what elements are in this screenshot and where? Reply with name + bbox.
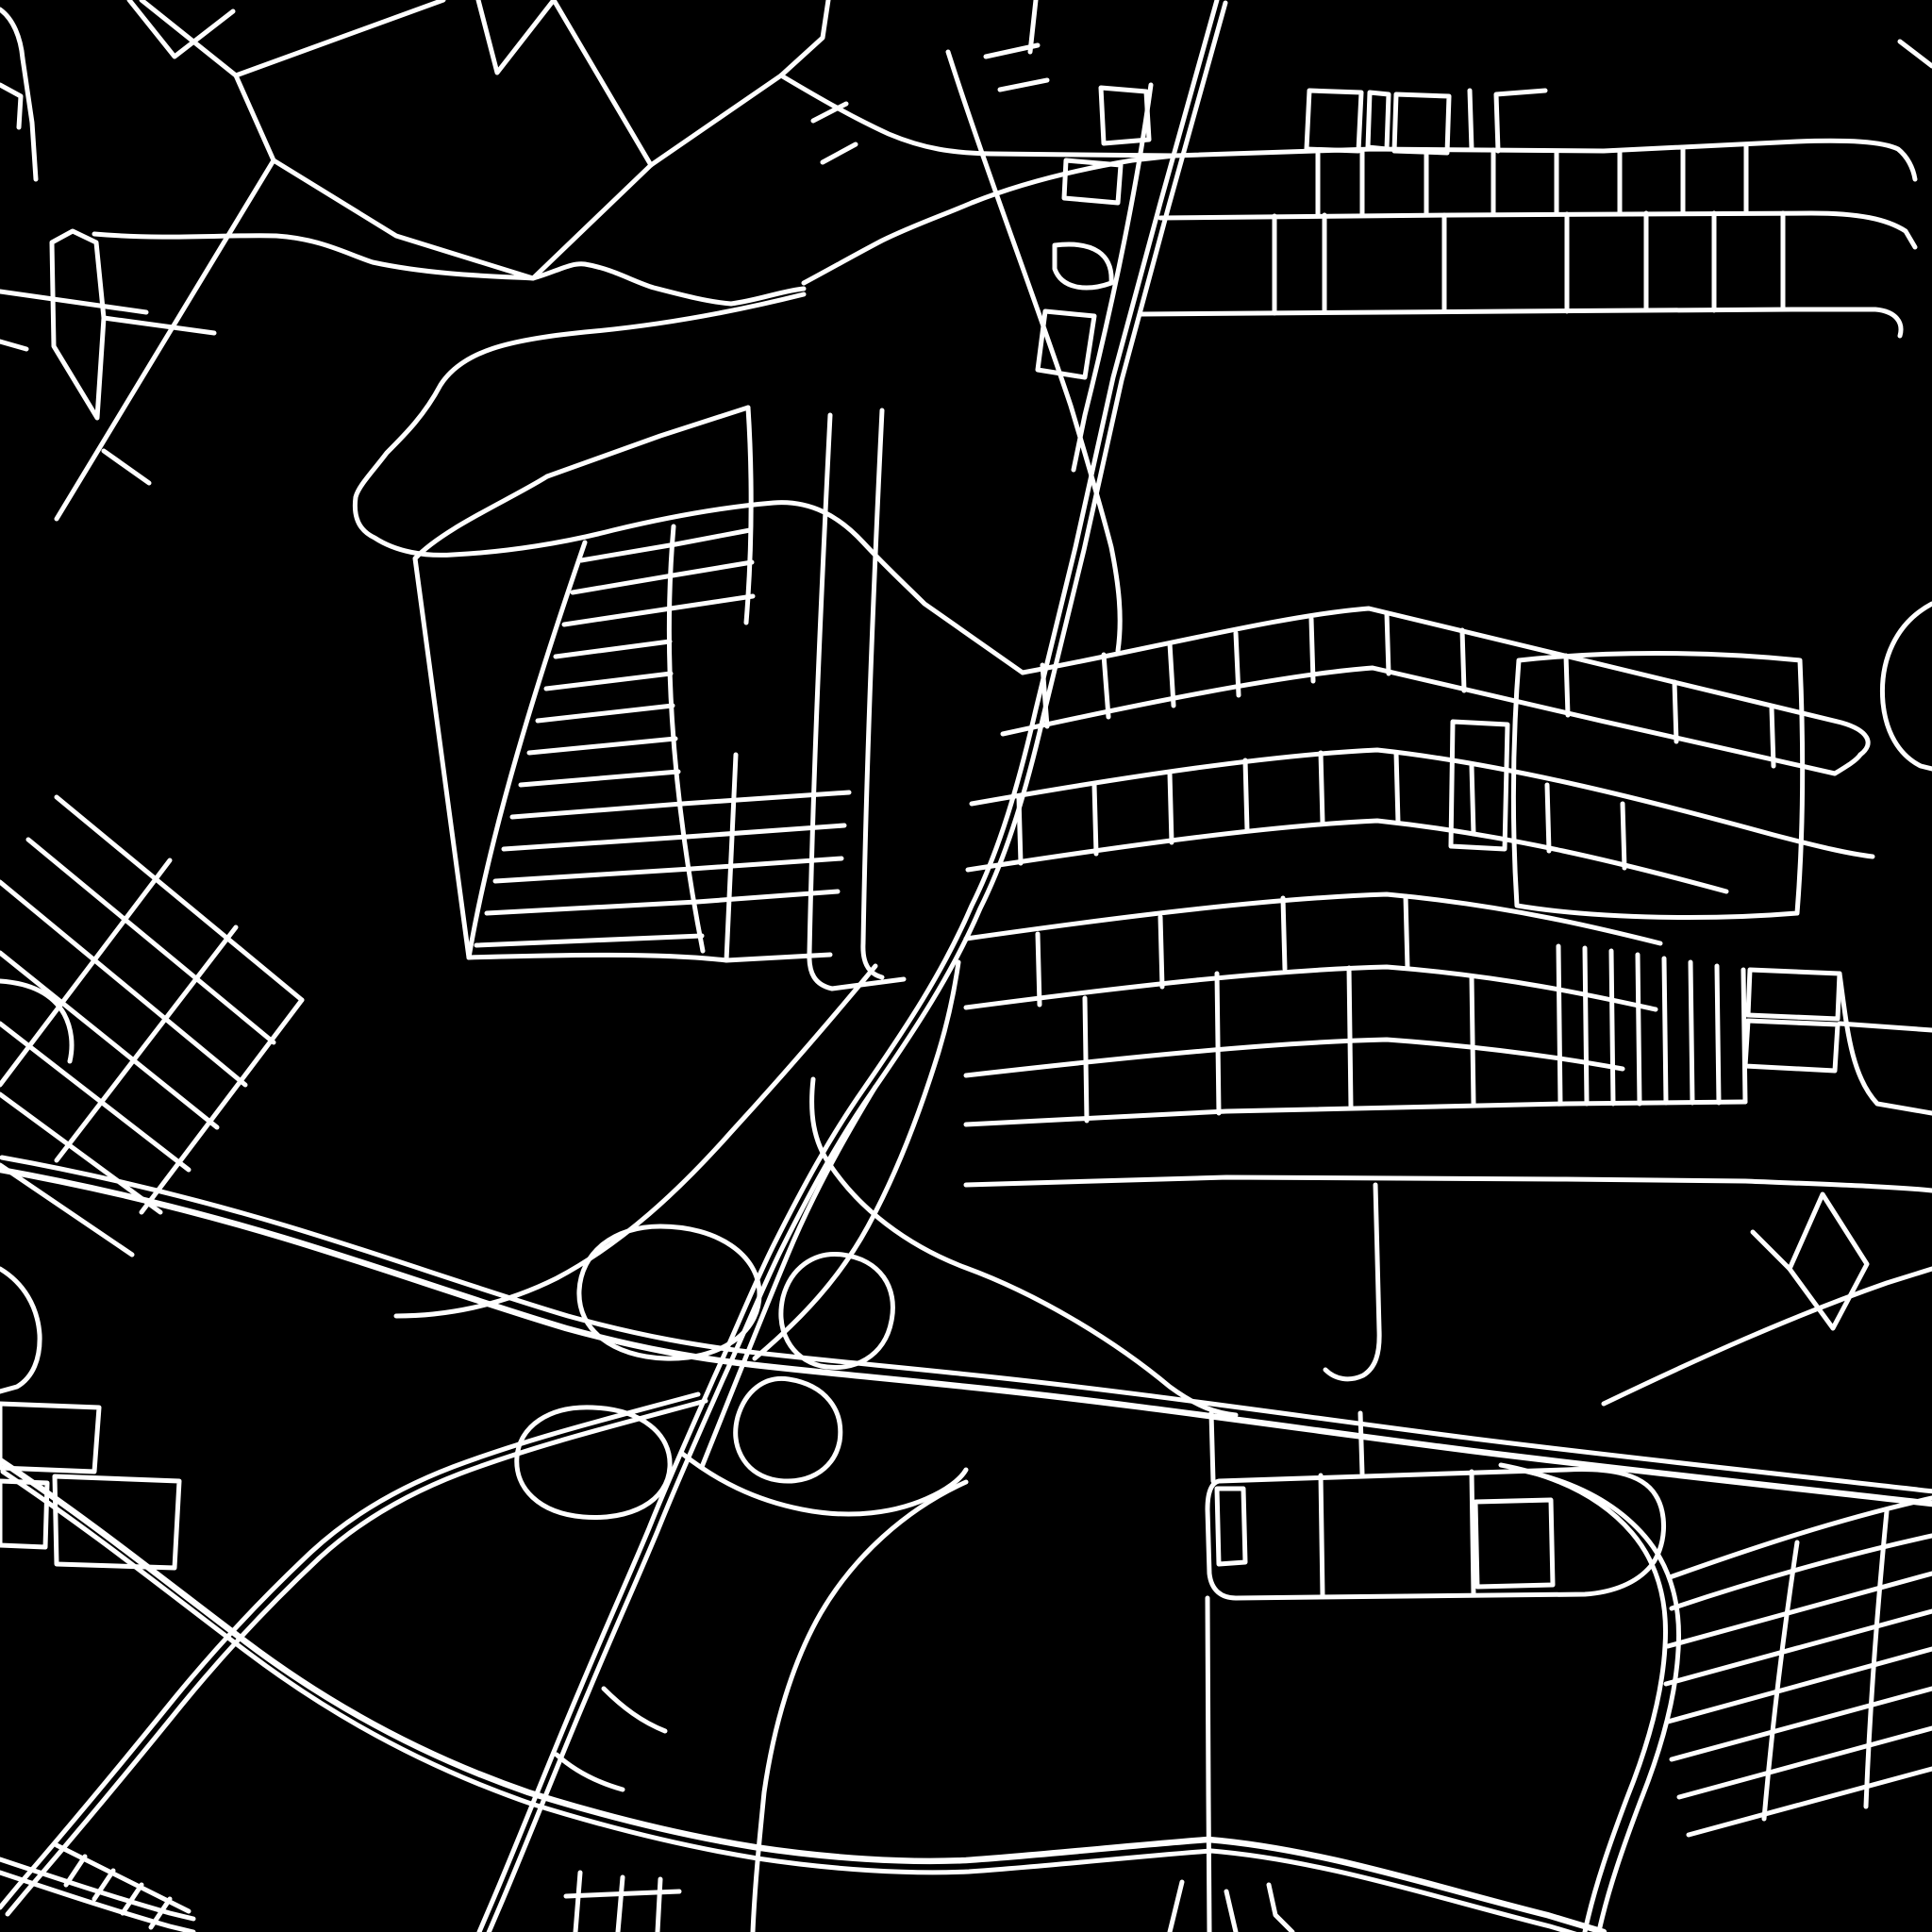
road-retail-vert-d1	[1038, 934, 1040, 1005]
road-column-grid-1	[1558, 946, 1560, 1104]
road-wedge-vert-10	[1772, 708, 1774, 766]
road-retail-vert-f4	[1472, 976, 1474, 1104]
road-retail-vert-f2	[1217, 974, 1219, 1113]
road-vertical-road-v3	[1207, 1598, 1209, 1932]
road-wedge-vert-8	[1566, 656, 1568, 715]
road-retail-vert-d3	[1283, 898, 1285, 969]
road-retail-vert-5	[1321, 753, 1323, 823]
road-column-grid-7	[1717, 966, 1719, 1103]
road-column-grid-2	[1585, 948, 1587, 1104]
road-retail-vert-d2	[1160, 917, 1162, 987]
road-retail-vert-9	[1623, 804, 1624, 868]
road-retail-vert-f3	[1349, 968, 1351, 1108]
road-wedge-vert-7	[1462, 630, 1464, 691]
road-wedge-vert-5	[1311, 619, 1313, 681]
map-canvas[interactable]	[0, 0, 1932, 1932]
road-column-grid-5	[1664, 958, 1666, 1103]
road-retail-vert-d4	[1406, 896, 1407, 968]
road-retail-vert-2	[1094, 785, 1096, 854]
road-stadium-div-1	[1321, 1475, 1323, 1596]
map-viewport[interactable]	[0, 0, 1932, 1932]
road-retail-vert-f1	[1085, 998, 1087, 1121]
road-column-grid-4	[1638, 955, 1640, 1104]
road-stadium-stub	[1360, 1413, 1362, 1474]
road-retail-vert-7	[1472, 766, 1474, 834]
road-retail-vert-4	[1245, 760, 1247, 830]
road-retail-vert-3	[1170, 774, 1172, 842]
road-wedge-vert-4	[1236, 633, 1239, 695]
road-bottom-comb-3	[658, 1879, 660, 1932]
road-stadium-antenna	[1211, 1413, 1213, 1481]
road-column-grid-3	[1611, 951, 1613, 1104]
road-retail-vert-8	[1547, 785, 1549, 851]
map-background	[0, 0, 1932, 1932]
road-column-grid-6	[1690, 962, 1692, 1103]
road-retail-vert-6	[1396, 753, 1398, 823]
road-wedge-vert-9	[1674, 682, 1676, 741]
road-wedge-vert-6	[1387, 613, 1389, 674]
road-stadium-div-2	[1472, 1472, 1474, 1594]
road-h1-stub-up	[1470, 91, 1472, 149]
road-retail-vert-1	[1019, 797, 1021, 863]
